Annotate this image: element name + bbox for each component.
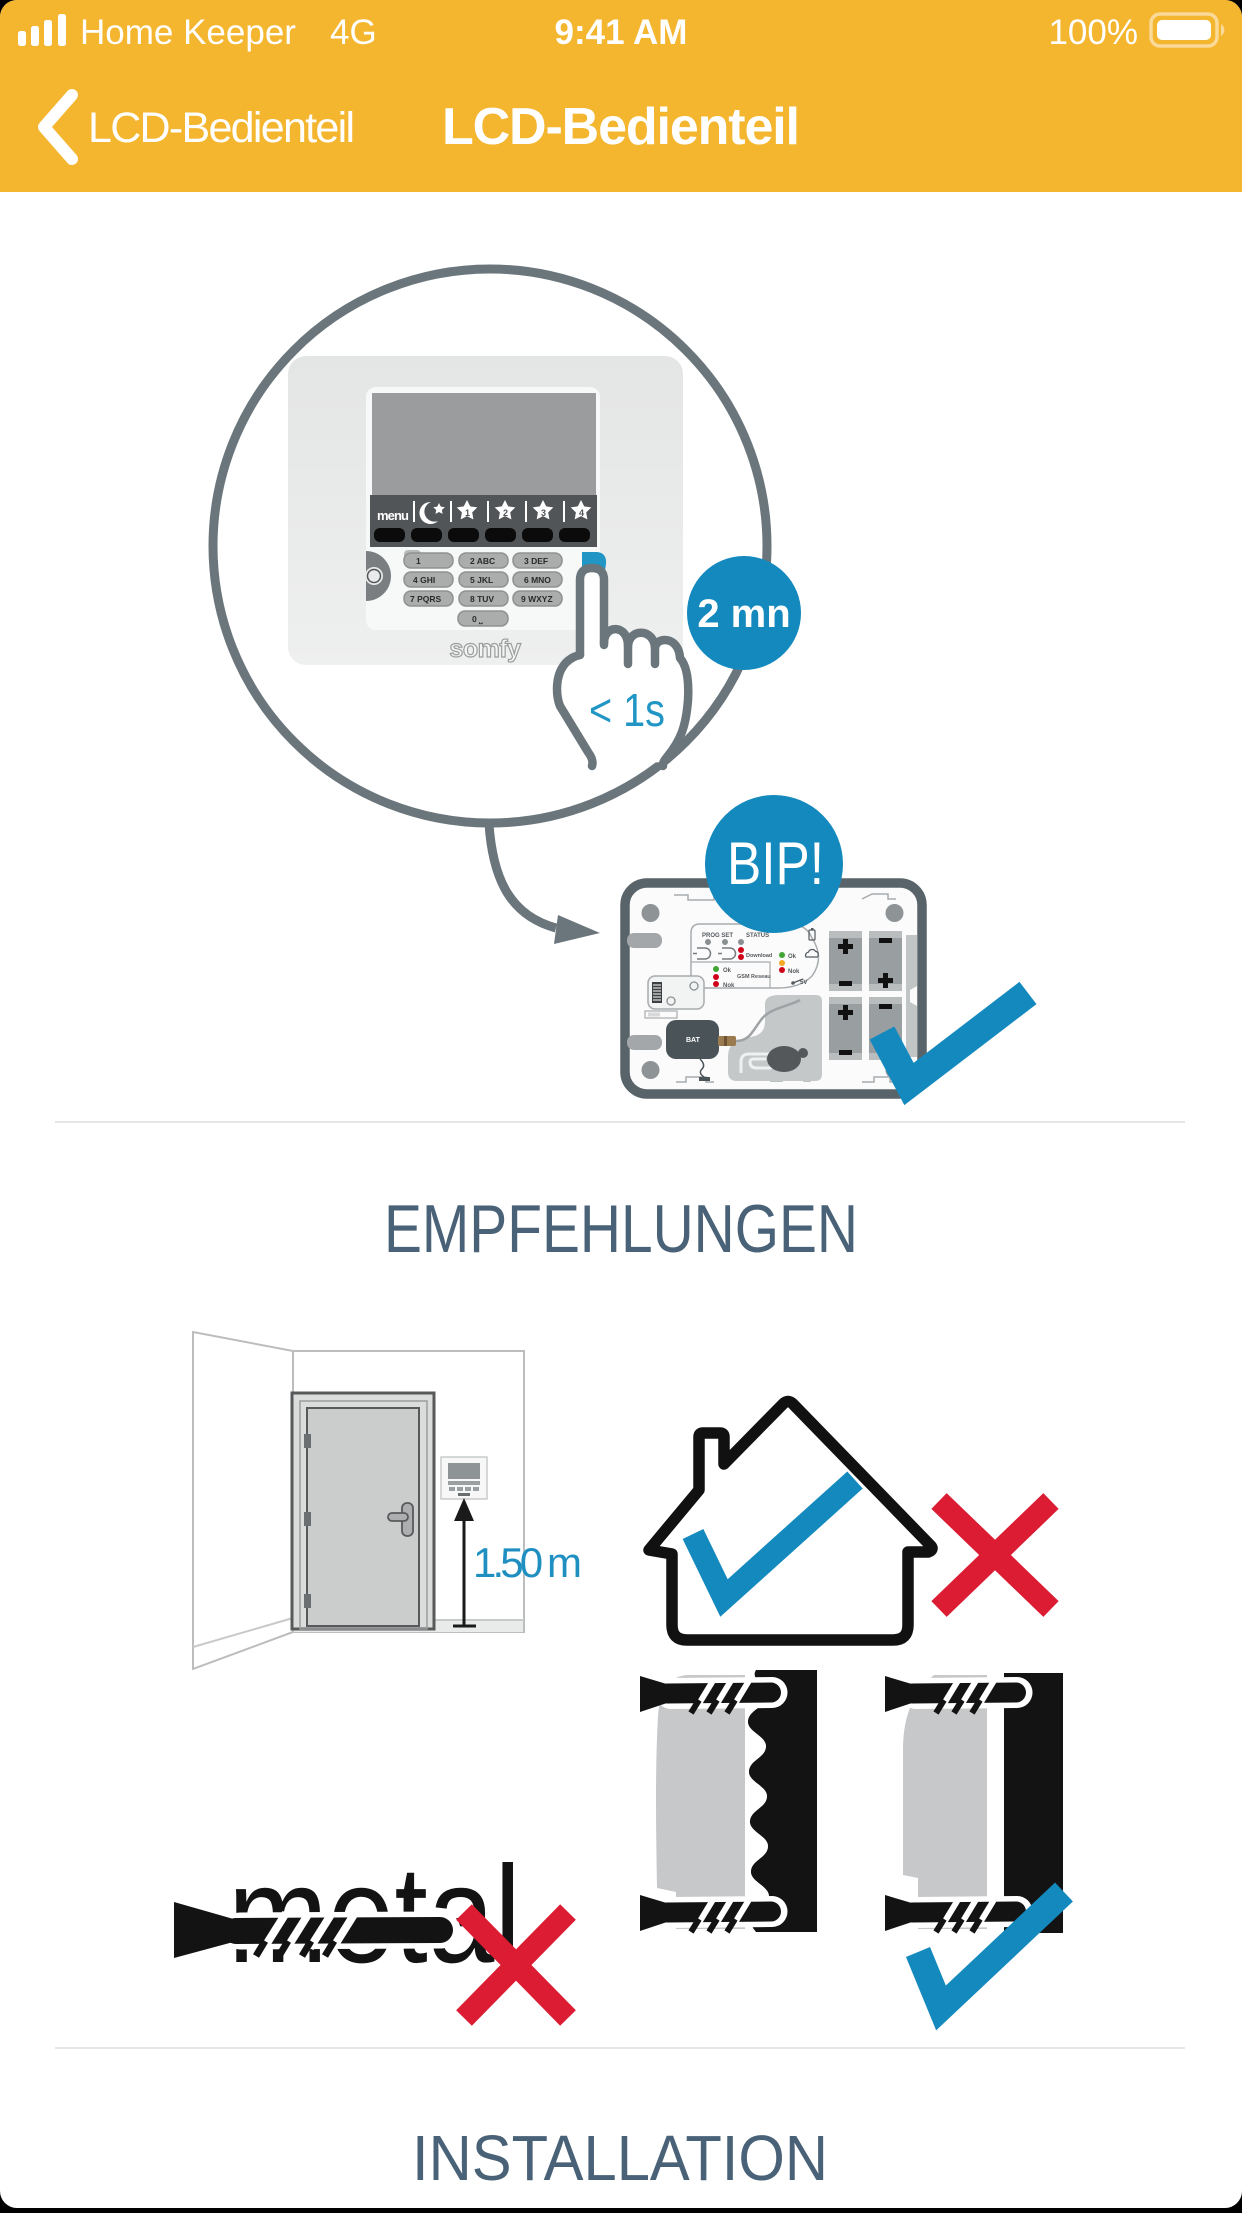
svg-text:8 TUV: 8 TUV — [470, 594, 494, 604]
svg-text:LCD-Bedienteil: LCD-Bedienteil — [88, 104, 355, 152]
svg-text:Ok: Ok — [788, 954, 797, 960]
svg-text:4G: 4G — [330, 13, 377, 52]
svg-text:STATUS: STATUS — [746, 933, 769, 939]
svg-text:2 mn: 2 mn — [697, 592, 790, 636]
svg-text:somfy: somfy — [449, 635, 521, 663]
svg-text:4: 4 — [579, 508, 584, 518]
svg-text:6 MNO: 6 MNO — [524, 575, 551, 585]
svg-text:3: 3 — [541, 508, 546, 518]
svg-text:5 JKL: 5 JKL — [470, 575, 493, 585]
svg-text:4 GHI: 4 GHI — [413, 575, 435, 585]
svg-text:Nok: Nok — [723, 983, 735, 989]
svg-text:GSM Reseau: GSM Reseau — [737, 974, 771, 980]
svg-text:LCD-Bedienteil: LCD-Bedienteil — [442, 98, 800, 156]
svg-text:INSTALLATION: INSTALLATION — [412, 2122, 828, 2194]
svg-text:5V: 5V — [800, 980, 807, 986]
svg-text:1: 1 — [416, 556, 421, 566]
svg-text:BAT: BAT — [686, 1037, 701, 1044]
svg-text:100%: 100% — [1048, 13, 1138, 52]
svg-text:Ok: Ok — [723, 968, 732, 974]
svg-text:Home Keeper: Home Keeper — [80, 13, 296, 52]
svg-text:0 ⎵: 0 ⎵ — [472, 614, 483, 624]
svg-text:3 DEF: 3 DEF — [524, 556, 548, 566]
svg-text:< 1s: < 1s — [589, 684, 665, 736]
svg-text:7 PQRS: 7 PQRS — [410, 594, 442, 604]
svg-text:9 WXYZ: 9 WXYZ — [521, 594, 553, 604]
svg-text:1.50 m: 1.50 m — [473, 1539, 581, 1586]
svg-text:9:41 AM: 9:41 AM — [555, 13, 688, 52]
svg-text:BIP!: BIP! — [727, 830, 824, 897]
svg-text:EMPFEHLUNGEN: EMPFEHLUNGEN — [384, 1191, 858, 1267]
svg-text:1: 1 — [465, 508, 470, 518]
svg-text:2 ABC: 2 ABC — [470, 556, 495, 566]
svg-text:Nok: Nok — [788, 969, 800, 975]
svg-text:PROG SET: PROG SET — [702, 933, 733, 939]
svg-text:2: 2 — [503, 508, 508, 518]
svg-text:Download: Download — [746, 953, 772, 959]
svg-text:menu: menu — [377, 508, 409, 523]
